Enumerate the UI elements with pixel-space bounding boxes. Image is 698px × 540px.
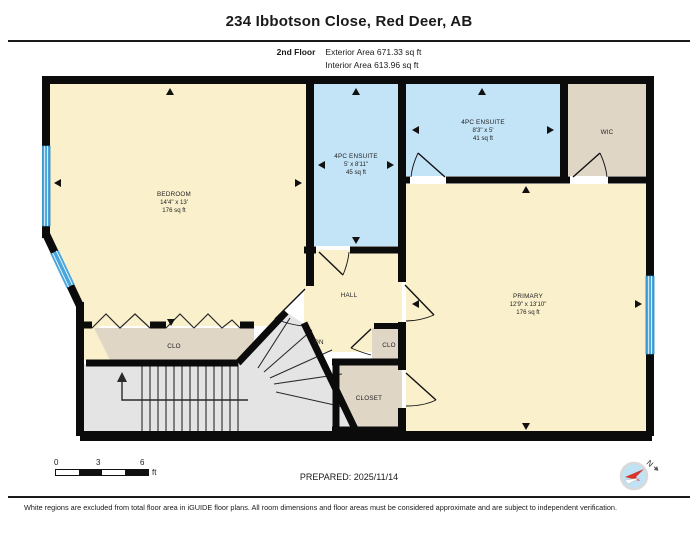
room-bedroom [50, 84, 306, 360]
closet-bedroom-label: CLO [167, 343, 181, 350]
ensuite-middle-dims: 5' x 8'11" [344, 161, 368, 168]
ensuite-top-area: 41 sq ft [473, 135, 493, 142]
area-summary: Exterior Area 671.33 sq ft Interior Area… [325, 46, 421, 71]
primary-dims: 12'9" x 13'10" [510, 301, 547, 308]
stairs-dn-label: DN [314, 339, 324, 346]
disclaimer-text: White regions are excluded from total fl… [24, 503, 684, 512]
floor-plan-svg: BEDROOM 14'4" x 13' 176 sq ft 4PC ENSUIT… [42, 76, 656, 450]
floor-label: 2nd Floor [277, 46, 316, 71]
window-left [42, 146, 50, 226]
primary-area: 176 sq ft [516, 309, 540, 316]
scale-tick-6: 6 [140, 458, 144, 467]
interior-area: Interior Area 613.96 sq ft [325, 59, 421, 72]
floor-plan-page: { "header": { "title": "234 Ibbotson Clo… [0, 0, 698, 540]
header-divider [8, 40, 690, 42]
ensuite-middle-area: 45 sq ft [346, 169, 366, 176]
compass-n-label: N [645, 458, 655, 469]
window-right [646, 276, 654, 354]
prepared-date: PREPARED: 2025/11/14 [0, 472, 698, 482]
floor-summary: 2nd Floor Exterior Area 671.33 sq ft Int… [0, 46, 698, 71]
ensuite-top-dims: 8'3" x 5' [472, 127, 493, 134]
ensuite-middle-label: 4PC ENSUITE [334, 153, 378, 160]
footer-divider [8, 496, 690, 498]
primary-label: PRIMARY [513, 293, 544, 300]
bedroom-label: BEDROOM [157, 191, 191, 198]
scale-tick-0: 0 [54, 458, 58, 467]
scale-tick-3: 3 [96, 458, 100, 467]
bedroom-area: 176 sq ft [162, 207, 186, 214]
closet-primary-label: CLOSET [356, 395, 382, 402]
bedroom-dims: 14'4" x 13' [160, 199, 188, 206]
page-title: 234 Ibbotson Close, Red Deer, AB [0, 13, 698, 30]
floor-plan: BEDROOM 14'4" x 13' 176 sq ft 4PC ENSUIT… [42, 76, 656, 455]
closet-hall-label: CLO [382, 342, 396, 349]
exterior-area: Exterior Area 671.33 sq ft [325, 46, 421, 59]
ensuite-top-label: 4PC ENSUITE [461, 119, 505, 126]
wic-label: WIC [601, 129, 614, 136]
hall-label: HALL [341, 292, 358, 299]
